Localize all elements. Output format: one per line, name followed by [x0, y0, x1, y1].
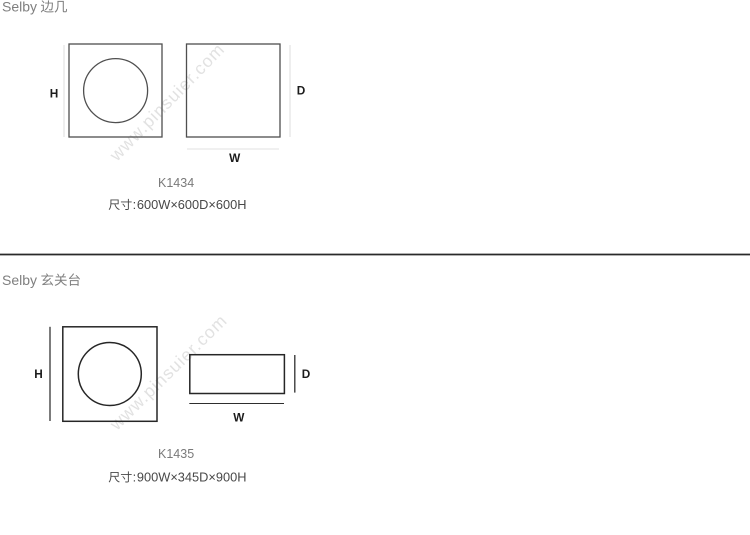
svg-text:D: D	[302, 367, 311, 381]
svg-text:W: W	[233, 411, 245, 425]
svg-text:Selby: Selby	[2, 272, 37, 288]
svg-text:D: D	[297, 84, 306, 98]
svg-text:900W×345D×900H: 900W×345D×900H	[137, 470, 247, 485]
svg-text:600W×600D×600H: 600W×600D×600H	[137, 197, 247, 212]
svg-text::: :	[133, 470, 137, 485]
svg-text:K1435: K1435	[158, 447, 194, 461]
svg-text:Selby: Selby	[2, 0, 37, 15]
svg-text:H: H	[50, 87, 59, 101]
svg-text::: :	[133, 197, 137, 212]
svg-text:K1434: K1434	[158, 176, 194, 190]
svg-text:W: W	[229, 151, 241, 165]
svg-text:H: H	[34, 367, 43, 381]
